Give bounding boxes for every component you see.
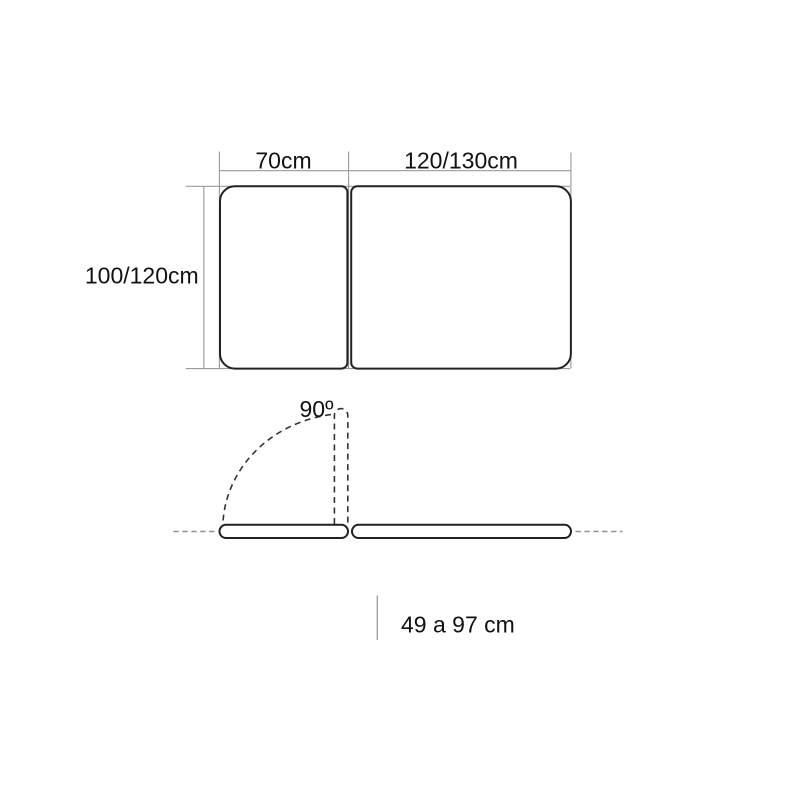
svg-text:100/120cm: 100/120cm <box>85 263 199 289</box>
svg-text:70cm: 70cm <box>255 148 311 174</box>
svg-text:49 a 97 cm: 49 a 97 cm <box>401 612 515 638</box>
svg-text:120/130cm: 120/130cm <box>404 148 518 174</box>
svg-text:90º: 90º <box>300 396 335 422</box>
